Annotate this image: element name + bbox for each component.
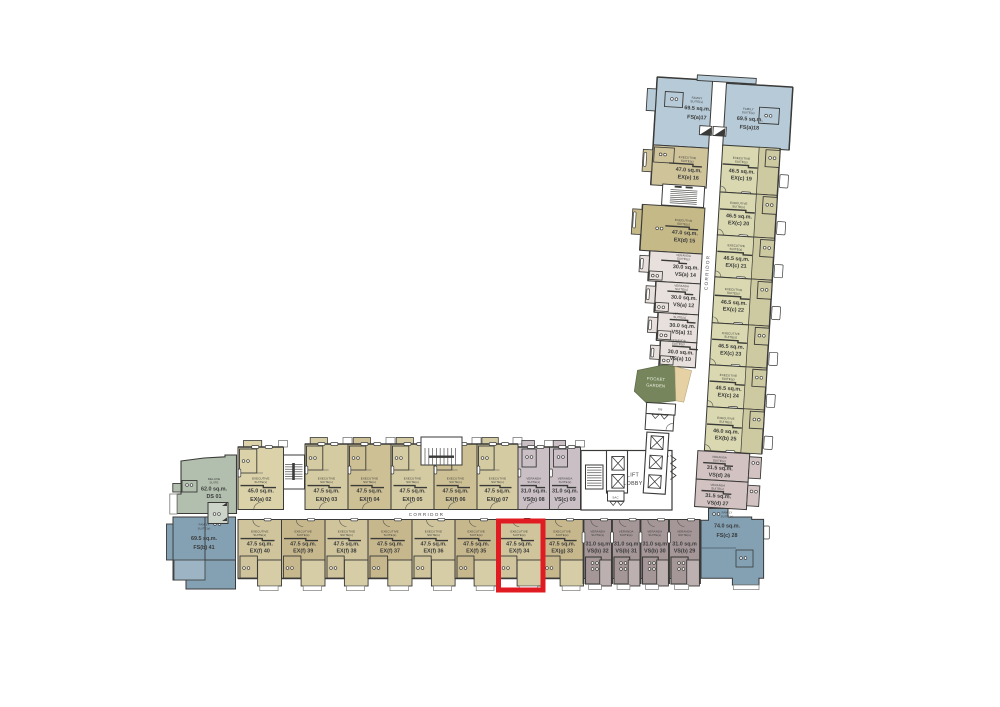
svg-text:VS(c) 09: VS(c) 09: [554, 497, 575, 503]
svg-text:FS(b) 41: FS(b) 41: [193, 545, 214, 551]
svg-text:SUITE(s): SUITE(s): [713, 458, 726, 463]
svg-text:EX(g) 07: EX(g) 07: [487, 497, 509, 503]
svg-text:EX(a) 02: EX(a) 02: [250, 497, 271, 503]
svg-text:SUITE(s): SUITE(s): [198, 527, 211, 531]
svg-text:31.0 sq.m: 31.0 sq.m: [586, 541, 611, 547]
svg-text:VS(a) 11: VS(a) 11: [671, 329, 692, 336]
svg-text:SUITE(s): SUITE(s): [591, 533, 604, 537]
svg-text:DS 01: DS 01: [207, 494, 222, 500]
svg-text:EX(f) 37: EX(f) 37: [380, 549, 400, 555]
svg-text:SUITE(s): SUITE(s): [254, 480, 267, 484]
svg-text:SUITE(s): SUITE(s): [449, 480, 462, 484]
svg-text:SUITE(s): SUITE(s): [732, 204, 745, 209]
svg-text:SUITE(s): SUITE(s): [406, 480, 419, 484]
svg-text:SUITE(s): SUITE(s): [320, 480, 333, 484]
svg-text:47.5 sq.m.: 47.5 sq.m.: [247, 541, 274, 547]
svg-text:EX(c) 19: EX(c) 19: [730, 175, 752, 182]
svg-text:SUITE(s): SUITE(s): [427, 533, 440, 537]
svg-text:GB: GB: [658, 407, 663, 411]
svg-text:FS(c) 28: FS(c) 28: [717, 533, 738, 539]
svg-text:EX(c) 21: EX(c) 21: [725, 263, 747, 270]
svg-text:VS(a) 10: VS(a) 10: [670, 356, 692, 363]
svg-text:SUITE(s): SUITE(s): [727, 291, 740, 296]
svg-text:47.5 sq.m.: 47.5 sq.m.: [549, 541, 576, 547]
svg-text:EX(c) 23: EX(c) 23: [720, 350, 742, 357]
svg-text:SUITE(s): SUITE(s): [722, 377, 735, 382]
svg-text:EX(f) 06: EX(f) 06: [445, 497, 465, 503]
svg-text:VS(a) 14: VS(a) 14: [675, 272, 697, 279]
svg-text:SUITE(s): SUITE(s): [470, 533, 483, 537]
svg-text:47.5 sq.m.: 47.5 sq.m.: [377, 541, 404, 547]
svg-text:SUITE(s): SUITE(s): [527, 480, 540, 484]
svg-text:SUITE(s): SUITE(s): [384, 533, 397, 537]
svg-text:47.5 sq.m.: 47.5 sq.m.: [420, 541, 447, 547]
svg-text:31.0 sq.m: 31.0 sq.m: [672, 541, 697, 547]
svg-text:LOBBY: LOBBY: [623, 481, 642, 487]
svg-text:SUITE(s): SUITE(s): [690, 99, 703, 104]
svg-text:LIFT: LIFT: [627, 473, 640, 479]
svg-text:EX(e) 16: EX(e) 16: [677, 174, 699, 181]
svg-text:SUITE(s): SUITE(s): [677, 222, 690, 227]
svg-text:SUITE: SUITE: [209, 481, 218, 485]
svg-text:SUITE(s): SUITE(s): [678, 533, 691, 537]
svg-text:SUITE(s): SUITE(s): [721, 515, 734, 519]
svg-text:SUITE(s): SUITE(s): [491, 480, 504, 484]
svg-text:EX(f) 38: EX(f) 38: [336, 549, 356, 555]
svg-text:47.5 sq.m.: 47.5 sq.m.: [442, 488, 469, 494]
svg-text:EX(c) 20: EX(c) 20: [728, 220, 750, 227]
svg-text:47.5 sq.m.: 47.5 sq.m.: [356, 488, 383, 494]
svg-text:SUITE(s): SUITE(s): [719, 420, 732, 425]
svg-text:VS(b) 31: VS(b) 31: [615, 549, 637, 555]
svg-text:69.5 sq.m.: 69.5 sq.m.: [191, 536, 218, 542]
svg-text:47.5 sq.m.: 47.5 sq.m.: [333, 541, 360, 547]
svg-text:SUITE(s): SUITE(s): [513, 533, 526, 537]
svg-text:SUITE(s): SUITE(s): [253, 533, 266, 537]
svg-text:CORRIDOR: CORRIDOR: [409, 512, 444, 517]
svg-text:SUITE(s): SUITE(s): [556, 533, 569, 537]
svg-text:VS(d) 27: VS(d) 27: [707, 500, 729, 507]
svg-text:SUITE(s): SUITE(s): [735, 160, 748, 165]
svg-text:47.5 sq.m.: 47.5 sq.m.: [484, 488, 511, 494]
svg-text:FS(a)17: FS(a)17: [687, 114, 707, 121]
svg-text:SUITE(s): SUITE(s): [711, 486, 724, 491]
svg-text:45.0 sq.m.: 45.0 sq.m.: [248, 488, 275, 494]
svg-text:47.5 sq.m.: 47.5 sq.m.: [506, 541, 533, 547]
svg-text:VS(d) 26: VS(d) 26: [708, 472, 730, 479]
svg-text:SUITE(s): SUITE(s): [729, 247, 742, 252]
svg-text:31.0 sq.m.: 31.0 sq.m.: [552, 488, 579, 494]
svg-text:EX(h) 03: EX(h) 03: [316, 497, 338, 503]
svg-text:SUITE(s): SUITE(s): [681, 159, 694, 164]
svg-text:SUITE(s): SUITE(s): [742, 110, 755, 115]
svg-text:SUITE(s): SUITE(s): [724, 335, 737, 340]
svg-text:47.5 sq.m.: 47.5 sq.m.: [290, 541, 317, 547]
svg-text:FS(a)18: FS(a)18: [739, 125, 759, 132]
svg-text:EX(f) 05: EX(f) 05: [402, 497, 422, 503]
svg-text:EX(g) 33: EX(g) 33: [551, 549, 573, 555]
svg-text:VS(b) 08: VS(b) 08: [523, 497, 545, 503]
svg-text:47.5 sq.m.: 47.5 sq.m.: [313, 488, 340, 494]
svg-text:EX(f) 40: EX(f) 40: [250, 549, 270, 555]
svg-text:62.0 sq.m.: 62.0 sq.m.: [201, 487, 228, 493]
svg-text:VS(b) 32: VS(b) 32: [587, 549, 609, 555]
svg-text:SUITE(s): SUITE(s): [297, 533, 310, 537]
svg-text:EX(c) 24: EX(c) 24: [717, 392, 739, 399]
svg-text:EX(f) 04: EX(f) 04: [359, 497, 379, 503]
svg-text:47.5 sq.m.: 47.5 sq.m.: [399, 488, 426, 494]
svg-text:SUITE(s): SUITE(s): [620, 533, 633, 537]
svg-text:VS(b) 30: VS(b) 30: [644, 549, 666, 555]
svg-text:EX(c) 22: EX(c) 22: [723, 307, 745, 314]
svg-text:EX(f) 35: EX(f) 35: [466, 549, 486, 555]
svg-text:31.0 sq.m.: 31.0 sq.m.: [521, 488, 548, 494]
svg-text:47.5 sq.m.: 47.5 sq.m.: [463, 541, 490, 547]
svg-text:SUITE(s): SUITE(s): [363, 480, 376, 484]
svg-text:VS(a) 12: VS(a) 12: [673, 302, 695, 309]
svg-text:74.0 sq.m.: 74.0 sq.m.: [714, 524, 741, 530]
svg-text:VS(b) 29: VS(b) 29: [674, 549, 696, 555]
svg-text:EX(f) 34: EX(f) 34: [509, 549, 529, 555]
svg-text:SUITE(s): SUITE(s): [648, 533, 661, 537]
svg-text:EX(f) 36: EX(f) 36: [423, 549, 443, 555]
svg-text:31.0 sq.m: 31.0 sq.m: [614, 541, 639, 547]
svg-text:SUITE(s): SUITE(s): [559, 480, 572, 484]
svg-text:SAC: SAC: [612, 496, 618, 500]
svg-text:EX(f) 39: EX(f) 39: [293, 549, 313, 555]
svg-text:SUITE(s): SUITE(s): [340, 533, 353, 537]
svg-text:31.0 sq.m: 31.0 sq.m: [643, 541, 668, 547]
